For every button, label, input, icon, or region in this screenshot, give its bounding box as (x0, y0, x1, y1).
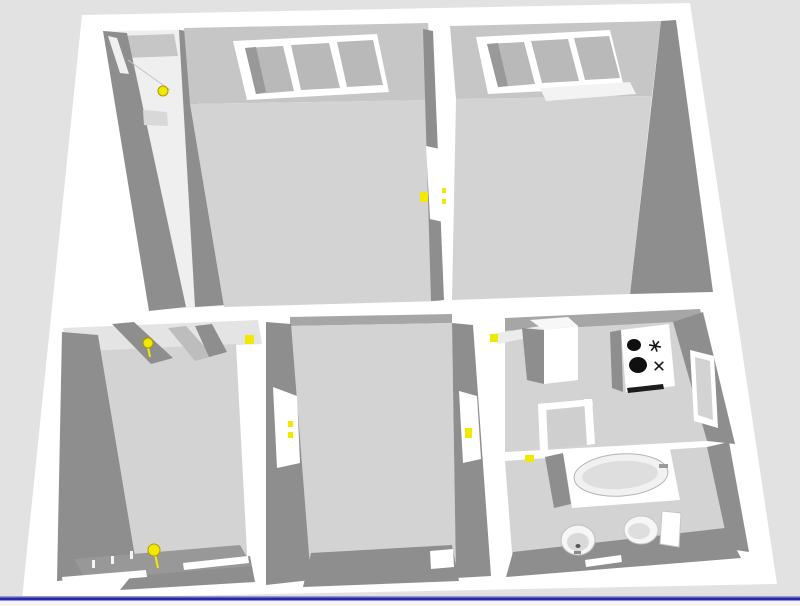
room4-east-door-marker[interactable] (465, 428, 472, 438)
scene-svg (0, 0, 800, 606)
divider-door-marker-right-2[interactable] (442, 199, 446, 204)
kitchen-door-opening[interactable] (546, 406, 590, 449)
window-bottom-strip (0, 601, 800, 606)
kitchen-cabinet-front[interactable] (544, 326, 578, 384)
sink-bowl (567, 533, 589, 551)
candle-3[interactable] (130, 551, 133, 559)
candle-1[interactable] (92, 560, 95, 568)
bath-door-marker[interactable] (525, 455, 534, 462)
hall-lamp-marker[interactable] (158, 86, 168, 96)
bathtub-faucet (659, 464, 668, 468)
room4-west-door-marker-2[interactable] (288, 432, 293, 438)
sink-tap (574, 551, 581, 554)
hall-floor-shadow (143, 110, 168, 126)
sink-drain (576, 544, 581, 548)
toilet-seat (628, 523, 650, 539)
candle-2[interactable] (111, 556, 114, 564)
room3-door-marker-2[interactable] (245, 335, 254, 344)
stove-burner-1 (627, 339, 641, 351)
floor-lamp-marker[interactable] (148, 544, 160, 556)
room4-west-door[interactable] (273, 387, 300, 468)
room4-radiator[interactable] (430, 549, 454, 569)
divider-door-marker-right-1[interactable] (442, 188, 446, 193)
kitchen-lamp-marker[interactable] (490, 334, 498, 342)
room4-floor (290, 323, 456, 580)
stove-side[interactable] (610, 330, 623, 392)
toilet-tank[interactable] (660, 511, 681, 547)
floorplan-3d-view[interactable] (0, 0, 800, 606)
stove-burner-2 (629, 357, 647, 373)
room2-floor (452, 96, 652, 300)
window-divider-line[interactable] (0, 598, 800, 601)
divider-door-marker-left[interactable] (420, 192, 428, 202)
stove-top[interactable] (621, 324, 675, 392)
room4-west-door-marker-1[interactable] (288, 421, 293, 427)
room3-door-marker-1[interactable] (143, 338, 153, 348)
window-divider-shadow (0, 596, 800, 598)
room1-floor (190, 100, 441, 307)
